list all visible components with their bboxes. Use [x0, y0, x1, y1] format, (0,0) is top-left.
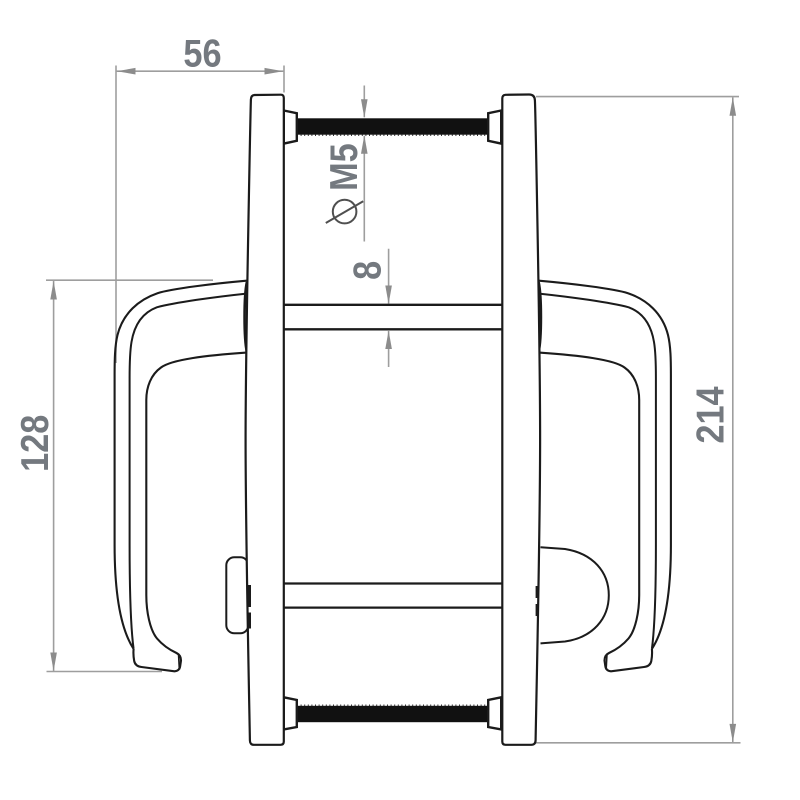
svg-text:M5: M5: [322, 143, 366, 191]
svg-text:56: 56: [183, 31, 221, 75]
svg-text:8: 8: [345, 261, 389, 280]
svg-text:128: 128: [13, 415, 57, 472]
svg-text:214: 214: [689, 386, 733, 444]
